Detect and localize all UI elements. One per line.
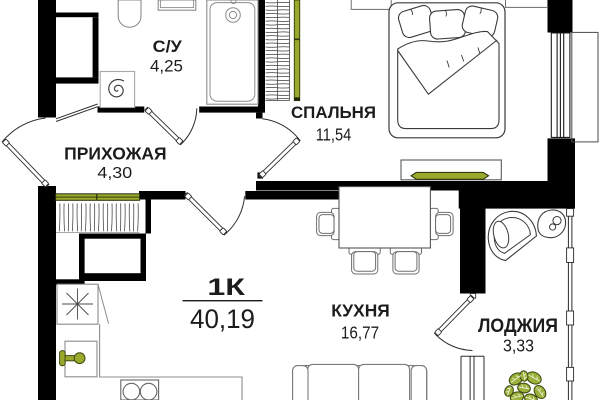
svg-text:ПРИХОЖАЯ: ПРИХОЖАЯ (64, 144, 167, 164)
svg-text:40,19: 40,19 (190, 304, 255, 334)
svg-text:3,33: 3,33 (503, 336, 534, 356)
svg-text:СПАЛЬНЯ: СПАЛЬНЯ (291, 103, 376, 122)
svg-text:4,25: 4,25 (150, 58, 183, 76)
svg-text:1К: 1К (207, 274, 245, 301)
svg-text:С/У: С/У (153, 37, 182, 56)
svg-text:11,54: 11,54 (316, 125, 352, 145)
svg-text:КУХНЯ: КУХНЯ (331, 301, 390, 321)
svg-text:ЛОДЖИЯ: ЛОДЖИЯ (478, 315, 558, 337)
svg-text:16,77: 16,77 (341, 323, 379, 343)
svg-text:4,30: 4,30 (97, 165, 132, 182)
